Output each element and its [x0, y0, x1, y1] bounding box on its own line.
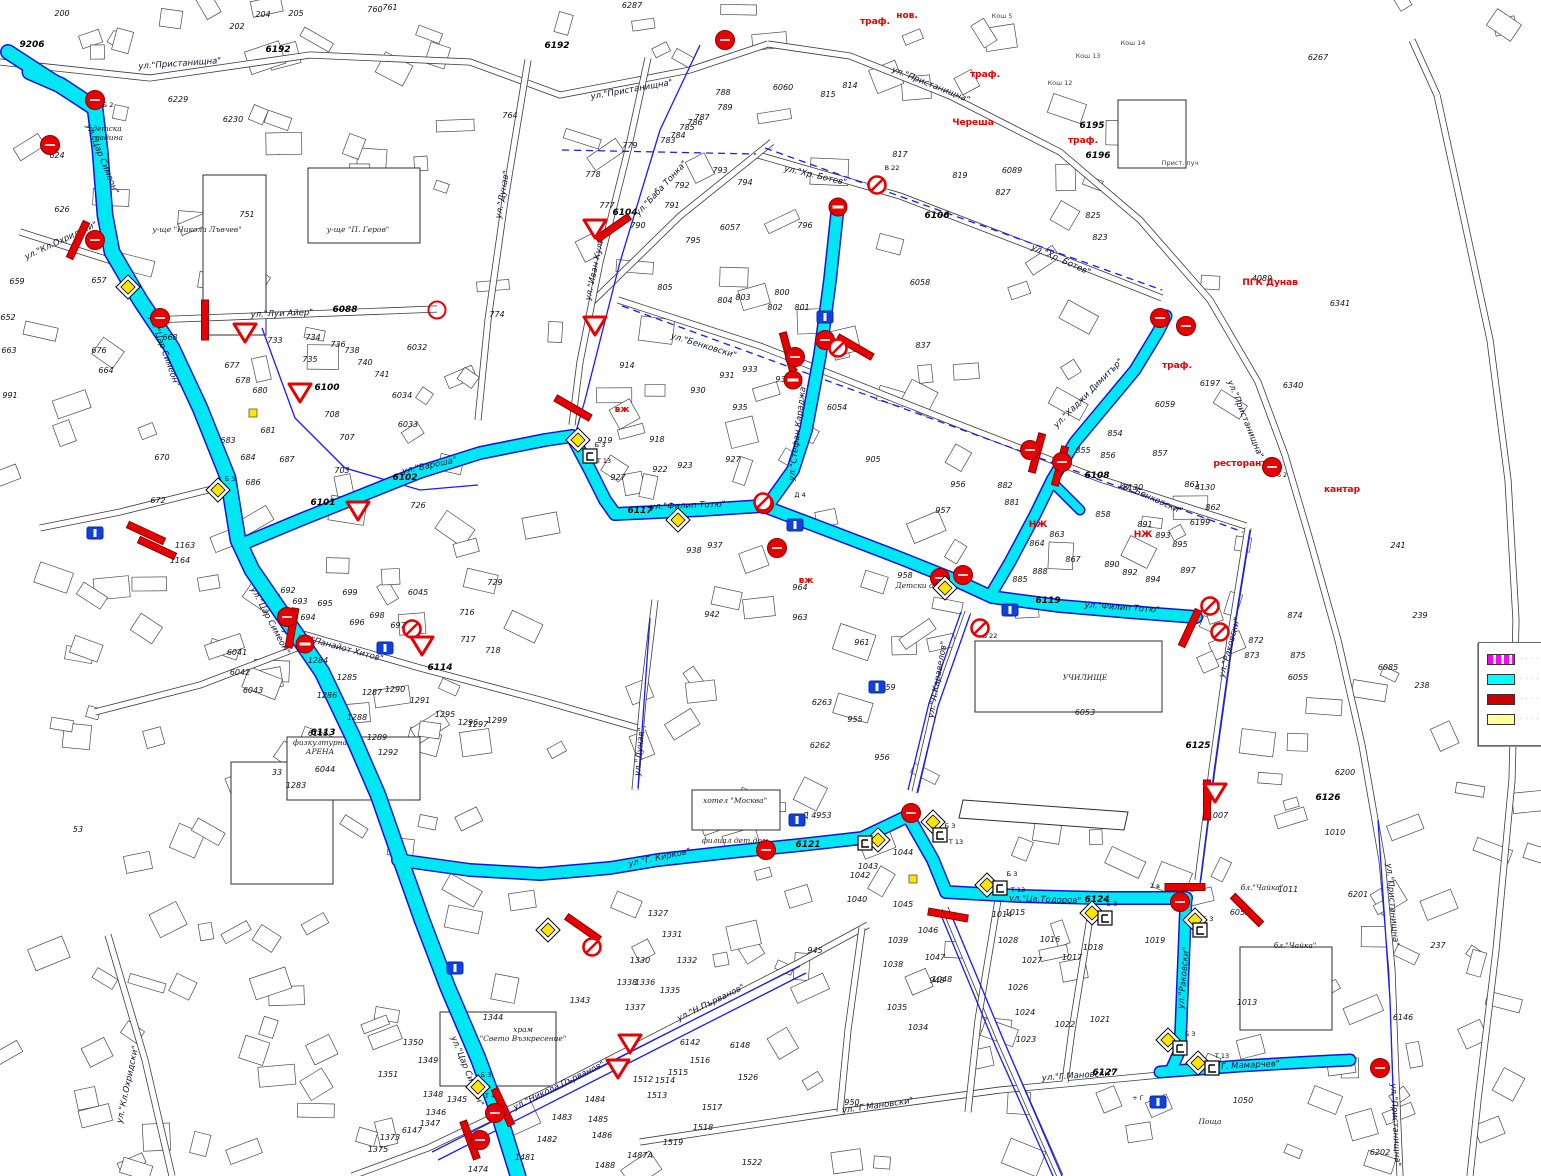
parcel-number: 684	[240, 453, 255, 462]
highlighted-street	[240, 436, 572, 545]
parcel-number: 957	[935, 506, 951, 515]
sign-code-label: В 22	[885, 164, 900, 172]
sign-code-label: Б 3	[1107, 900, 1118, 908]
parcel-number: 790	[630, 221, 645, 230]
parcel-number: 1518	[693, 1123, 713, 1132]
parcel-number: 1338	[617, 978, 637, 987]
parcel-number: 1019	[1145, 936, 1165, 945]
parcel-number: 6043	[243, 686, 263, 695]
road-number-label: 6114	[427, 663, 452, 673]
parcel-number: 6267	[1308, 53, 1329, 62]
parcel-number: 890	[1104, 560, 1119, 569]
parcel-number: 237	[1430, 941, 1446, 950]
parcel-outline	[944, 539, 967, 564]
legend-item: · · · · · ·	[1487, 649, 1541, 669]
sign-code-label: Б 3	[225, 475, 236, 483]
parcel-number: 875	[1290, 651, 1305, 660]
parcel-number: 652	[0, 313, 15, 322]
info-sign-icon	[869, 681, 885, 693]
parcel-number: 802	[767, 303, 782, 312]
parcel-number: 33	[272, 768, 282, 777]
parcel-number: 200	[54, 9, 69, 18]
parcel-number: 893	[1155, 531, 1170, 540]
parcel-outline	[1306, 698, 1343, 716]
parcel-number: 1513	[647, 1091, 667, 1100]
parcel-outline	[547, 741, 567, 758]
poi-red-label: ПГК Дунав	[1242, 278, 1298, 288]
parcel-outline	[416, 25, 443, 43]
parcel-number: 6197	[1200, 379, 1221, 388]
sign-plate-icon	[933, 828, 947, 842]
parcel-number: 927	[610, 473, 626, 482]
road-number-label: 6117	[627, 506, 653, 516]
parcel-number: 1034	[908, 1023, 928, 1032]
parcel-number: 779	[622, 141, 637, 150]
parcel-number: 6057	[720, 223, 741, 232]
parcel-outline	[1059, 300, 1099, 334]
legend-swatch	[1487, 654, 1515, 665]
parcel-outline	[725, 416, 758, 449]
parcel-outline	[1430, 721, 1459, 752]
parcel-number: 1327	[648, 909, 669, 918]
parcel-number: 6115	[308, 729, 328, 738]
road-number-label: 6196	[1085, 151, 1110, 161]
parcel-outline	[92, 968, 118, 990]
yield-sign-icon	[411, 637, 433, 655]
parcel-outline	[1283, 797, 1299, 810]
no-entry-sign-icon	[784, 371, 802, 389]
parcel-number: 963	[792, 613, 807, 622]
parcel-number: 6130	[1123, 483, 1143, 492]
parcel-number: 698	[369, 611, 384, 620]
parcel-number: 819	[952, 171, 967, 180]
parcel-number: 867	[1065, 555, 1081, 564]
parcel-number: 1373	[380, 1133, 400, 1142]
stop-sign-icon	[954, 566, 973, 585]
parcel-outline	[123, 851, 152, 873]
sign-plate-icon	[1205, 1061, 1219, 1075]
parcel-outline	[266, 132, 302, 155]
parcel-number: 823	[1092, 233, 1107, 242]
parcel-number: 241	[1390, 541, 1405, 550]
road-surface	[108, 935, 172, 1176]
parcel-number: 1512	[633, 1075, 653, 1084]
parcel-number: 961	[854, 638, 869, 647]
parcel-number: 855	[1075, 446, 1090, 455]
legend-swatch	[1487, 714, 1515, 725]
poi-red-label: НЖ	[1134, 530, 1153, 540]
parcel-outline	[197, 575, 220, 592]
parcel-number: 626	[54, 205, 69, 214]
poi-red-label: траф.	[1068, 136, 1098, 146]
stop-sign-icon	[1371, 1059, 1390, 1078]
parcel-outline	[1008, 281, 1031, 300]
parcel-number: 6340	[1283, 381, 1303, 390]
parcel-number: 6148	[730, 1041, 750, 1050]
sign-code-label: Т 13	[1010, 886, 1025, 894]
stop-sign-icon	[902, 804, 921, 823]
road-number-label: 6102	[392, 473, 417, 483]
parcel-outline	[149, 901, 187, 937]
parcel-number: 1163	[175, 541, 195, 550]
parcel-number: 1289	[367, 733, 387, 742]
parcel-number: 204	[255, 10, 270, 19]
stop-sign-icon	[1021, 441, 1040, 460]
parcel-number: 796	[797, 221, 812, 230]
street-name-label: ул."Луи Айер"	[249, 308, 313, 320]
parcel-outline	[52, 390, 91, 419]
parcel-number: 695	[317, 599, 332, 608]
parcel-outline	[1121, 536, 1157, 569]
building-footprint	[1118, 100, 1186, 168]
road-surface	[1437, 95, 1516, 1176]
parcel-number: 6146	[1393, 1013, 1413, 1022]
parcel-number: 905	[865, 455, 880, 464]
parcel-number: 1038	[883, 960, 903, 969]
parcel-number: 6054	[827, 403, 847, 412]
parcel-number: 717	[460, 635, 476, 644]
legend-swatch	[1487, 694, 1515, 705]
parcel-outline	[226, 1138, 263, 1164]
parcel-number: 803	[735, 293, 750, 302]
parcel-outline	[198, 922, 214, 940]
parcel-outline	[23, 321, 58, 341]
parcel-number: 716	[459, 608, 474, 617]
parcel-outline	[802, 1071, 823, 1090]
parcel-number: 774	[489, 310, 504, 319]
parcel-outline	[713, 952, 729, 967]
parcel-number: 1021	[1090, 1015, 1110, 1024]
info-sign-icon	[817, 311, 833, 323]
parcel-number: 6041	[227, 648, 247, 657]
minor-label: Кош 14	[1121, 39, 1146, 47]
parcel-number: 788	[715, 88, 730, 97]
parcel-number: 751	[239, 210, 254, 219]
parcel-number: 933	[742, 365, 757, 374]
parcel-outline	[611, 891, 643, 918]
parcel-number: 1295	[435, 710, 455, 719]
road-surface	[840, 928, 862, 1112]
parcel-number: 6045	[408, 588, 428, 597]
parcel-number: 1516	[690, 1056, 710, 1065]
info-sign-icon	[1150, 1096, 1166, 1108]
parcel-outline	[902, 29, 923, 45]
parcel-outline	[300, 1068, 334, 1100]
parcel-number: 6202	[1370, 1148, 1390, 1157]
parcel-number: 923	[677, 461, 692, 470]
parcel-number: 815	[820, 90, 835, 99]
parcel-number: 938	[686, 546, 701, 555]
poi-red-label: НЖ	[1029, 520, 1048, 530]
parcel-number: 793	[712, 166, 727, 175]
parcel-number: 1285	[337, 673, 357, 682]
parcel-number: 777	[599, 201, 615, 210]
stop-sign-icon	[768, 539, 787, 558]
parcel-number: 897	[1180, 566, 1196, 575]
prohibition-sign-icon	[869, 177, 886, 194]
parcel-outline	[652, 42, 671, 58]
parcel-number: 1287	[362, 688, 383, 697]
parcel-outline	[504, 610, 543, 643]
parcel-number: 927	[725, 455, 741, 464]
place-label: УЧИЛИЩЕ	[1063, 673, 1108, 682]
parcel-number: 1332	[677, 956, 697, 965]
parcel-outline	[793, 777, 827, 811]
parcel-outline	[685, 153, 714, 184]
legend-swatch	[1487, 674, 1515, 685]
parcel-outline	[632, 18, 655, 31]
parcel-outline	[508, 890, 536, 911]
parcel-number: 888	[1032, 567, 1047, 576]
parcel-number: 792	[674, 181, 689, 190]
parcel-number: 735	[302, 355, 317, 364]
parcel-number: 862	[1205, 503, 1220, 512]
parcel-number: 956	[874, 753, 889, 762]
parcel-outline	[0, 1040, 23, 1068]
parcel-number: 854	[1107, 429, 1122, 438]
parcel-number: 687	[279, 455, 295, 464]
parcel-number: 1022	[1055, 1020, 1075, 1029]
parcel-number: 948	[929, 976, 944, 985]
street-name-label: ул."Цв.Тодоров"	[1008, 894, 1082, 907]
stop-sign-icon	[1151, 309, 1170, 328]
parcel-number: 1017	[1062, 953, 1083, 962]
road-number-label: 6195	[1079, 121, 1104, 131]
sign-plate-icon	[583, 449, 597, 463]
parcel-outline	[953, 363, 979, 380]
parcel-number: 1526	[738, 1073, 758, 1082]
minor-label: Кош 5	[992, 12, 1013, 20]
parcel-number: 239	[1412, 611, 1427, 620]
network-line	[941, 915, 1053, 1176]
parcel-number: 778	[585, 170, 600, 179]
parcel-outline	[460, 729, 492, 757]
poi-red-label: вж	[615, 405, 630, 415]
poi-red-label: траф.	[1162, 361, 1192, 371]
parcel-number: 817	[892, 150, 908, 159]
parcel-outline	[767, 1027, 798, 1059]
parcel-number: 1050	[1233, 1096, 1253, 1105]
place-label: у-ще "П. Геров"	[326, 225, 390, 234]
parcel-outline	[1351, 680, 1387, 702]
stop-sign-icon	[278, 608, 297, 627]
road-surface	[968, 900, 998, 1112]
parcel-number: 6262	[810, 741, 830, 750]
parcel-number: 955	[847, 715, 862, 724]
poi-red-label: траф.	[970, 70, 1000, 80]
prohibition-sign-icon	[1212, 624, 1229, 641]
parcel-outline	[424, 42, 450, 69]
parcel-outline	[757, 109, 792, 124]
parcel-outline	[720, 267, 749, 287]
parcel-number: 659	[9, 277, 24, 286]
parcel-outline	[301, 913, 329, 935]
parcel-number: 668	[162, 333, 177, 342]
closure-bar-icon	[1165, 884, 1205, 891]
road-number-label: 6108	[1084, 471, 1109, 481]
parcel-outline	[221, 921, 251, 944]
parcel-number: 696	[349, 618, 364, 627]
parcel-number: 680	[252, 386, 267, 395]
parcel-number: 1042	[850, 871, 870, 880]
parcel-number: Д 4953	[801, 811, 831, 820]
parcel-number: 1346	[426, 1108, 446, 1117]
parcel-outline	[721, 4, 757, 15]
parcel-number: 686	[245, 478, 260, 487]
road-surface	[945, 908, 1060, 1176]
parcel-number: 1347	[420, 1119, 441, 1128]
parcel-number: 1343	[570, 996, 590, 1005]
parcel-number: 1043	[858, 862, 878, 871]
parcel-outline	[918, 364, 934, 383]
parcel-number: 935	[732, 403, 747, 412]
parcel-outline	[264, 110, 292, 130]
parcel-outline	[418, 814, 438, 830]
parcel-number: 1349	[418, 1056, 438, 1065]
sign-code-label: Б 3	[1185, 1030, 1196, 1038]
parcel-number: 6341	[1330, 299, 1350, 308]
parcel-number: 1007	[1208, 811, 1229, 820]
parcel-outline	[1211, 857, 1232, 882]
parcel-outline	[1126, 1122, 1153, 1143]
parcel-outline	[90, 45, 104, 59]
parcel-outline	[1345, 1108, 1378, 1141]
parcel-number: 1027	[1022, 956, 1043, 965]
parcel-number: 1015	[1005, 908, 1025, 917]
parcel-outline	[239, 1035, 270, 1065]
parcel-number: 734	[305, 333, 320, 342]
place-label: Поща	[1197, 1117, 1221, 1126]
parcel-number: 1046	[918, 926, 938, 935]
road-number-label: 6106	[924, 211, 949, 221]
parcel-number: 937	[707, 541, 723, 550]
road-number-label: 6125	[1185, 741, 1210, 751]
parcel-number: 693	[292, 597, 307, 606]
parcel-outline	[251, 356, 271, 383]
poi-red-label: вж	[799, 576, 814, 586]
parcel-number: 856	[1100, 451, 1115, 460]
legend-label: · · · · · ·	[1521, 656, 1541, 662]
parcel-outline	[74, 1087, 98, 1111]
street-name-label: ул."Н.Първанов"	[675, 982, 747, 1024]
parcel-outline	[300, 27, 334, 52]
parcel-outline	[664, 708, 700, 740]
parcel-number: 6089	[1002, 166, 1022, 175]
parcel-number: 1375	[368, 1145, 388, 1154]
parcel-number: 6263	[812, 698, 832, 707]
info-sign-icon	[1002, 604, 1018, 616]
parcel-number: 956	[950, 480, 965, 489]
parcel-number: 1486	[592, 1131, 612, 1140]
stop-sign-icon	[716, 31, 735, 50]
parcel-outline	[169, 973, 197, 1000]
parcel-outline	[554, 12, 573, 36]
parcel-outline	[645, 384, 665, 396]
parcel-outline	[252, 925, 281, 953]
parcel-number: 950	[844, 1098, 859, 1107]
prohibition-sign-icon	[972, 620, 989, 637]
info-sign-icon	[377, 642, 393, 654]
parcel-number: 891	[1137, 520, 1152, 529]
parcel-outline	[53, 420, 77, 447]
legend-label: · · · · ·	[1521, 676, 1541, 682]
parcel-outline	[1386, 814, 1424, 841]
parcel-outline	[159, 8, 183, 28]
parcel-number: 1488	[595, 1161, 615, 1170]
parcel-number: 1044	[893, 848, 913, 857]
parcel-outline	[1284, 1144, 1303, 1159]
parcel-outline	[1287, 733, 1308, 751]
parcel-number: 1485	[588, 1115, 608, 1124]
parcel-outline	[356, 1127, 378, 1146]
parcel-number: 238	[1414, 681, 1429, 690]
parcel-number: 681	[260, 426, 275, 435]
parcel-number: 718	[485, 646, 500, 655]
parcel-number: 6085	[1378, 663, 1398, 672]
sign-code-label: Б 3	[595, 441, 606, 449]
parcel-number: 676	[91, 346, 106, 355]
parcel-number: 4130	[1195, 483, 1215, 492]
sign-code-label: 2 в	[1150, 882, 1160, 890]
place-label: хотел "Москва"	[703, 796, 767, 805]
parcel-number: 864	[1029, 539, 1044, 548]
parcel-number: 1292	[378, 748, 398, 757]
road-number-label: 6126	[1315, 793, 1340, 803]
parcel-number: 677	[224, 361, 240, 370]
parcel-outline	[194, 0, 221, 20]
parcel-number: 827	[995, 188, 1011, 197]
parcel-outline	[1056, 164, 1076, 191]
info-sign-icon	[447, 962, 463, 974]
parcel-outline	[1258, 772, 1283, 784]
parcel-outline	[0, 464, 21, 490]
sign-code-label: Б 3	[1007, 870, 1018, 878]
parcel-outline	[326, 558, 349, 574]
parcel-outline	[1391, 0, 1412, 11]
stop-sign-icon	[1177, 317, 1196, 336]
parcel-number: 699	[342, 588, 357, 597]
parcel-number: 657	[91, 276, 107, 285]
parcel-number: 1045	[893, 900, 913, 909]
parcel-number: 6287	[622, 1, 643, 10]
parcel-outline	[128, 973, 166, 993]
parcel-outline	[297, 1103, 334, 1118]
parcel-outline	[381, 568, 400, 585]
parcel-number: 958	[897, 571, 912, 580]
parcel-outline	[548, 321, 563, 342]
parcel-number: 1484	[585, 1095, 605, 1104]
stop-sign-icon	[1171, 893, 1190, 912]
parcel-outline	[455, 807, 483, 831]
sign-code-label: Д 4	[794, 491, 805, 499]
map-viewport[interactable]: ул."Пристанищна"ул."Пристанищна"ул."Прис…	[0, 0, 1541, 1176]
parcel-number: 805	[657, 283, 672, 292]
place-label: бл."Чайка"	[1274, 941, 1317, 950]
parcel-number: 1283	[286, 781, 306, 790]
parcel-outline	[259, 1016, 279, 1038]
parcel-number: 1286	[317, 691, 337, 700]
yield-sign-icon	[607, 1060, 629, 1078]
parcel-number: 791	[664, 201, 679, 210]
yellow-marker-icon	[249, 409, 257, 417]
road-number-label: 6119	[1035, 596, 1060, 606]
stop-sign-icon	[757, 841, 776, 860]
parcel-number: 1515	[668, 1068, 688, 1077]
road-surface	[40, 485, 228, 528]
parcel-number: 1337	[625, 1003, 646, 1012]
parcel-number: 991	[2, 391, 17, 400]
parcel-number: 733	[267, 336, 282, 345]
